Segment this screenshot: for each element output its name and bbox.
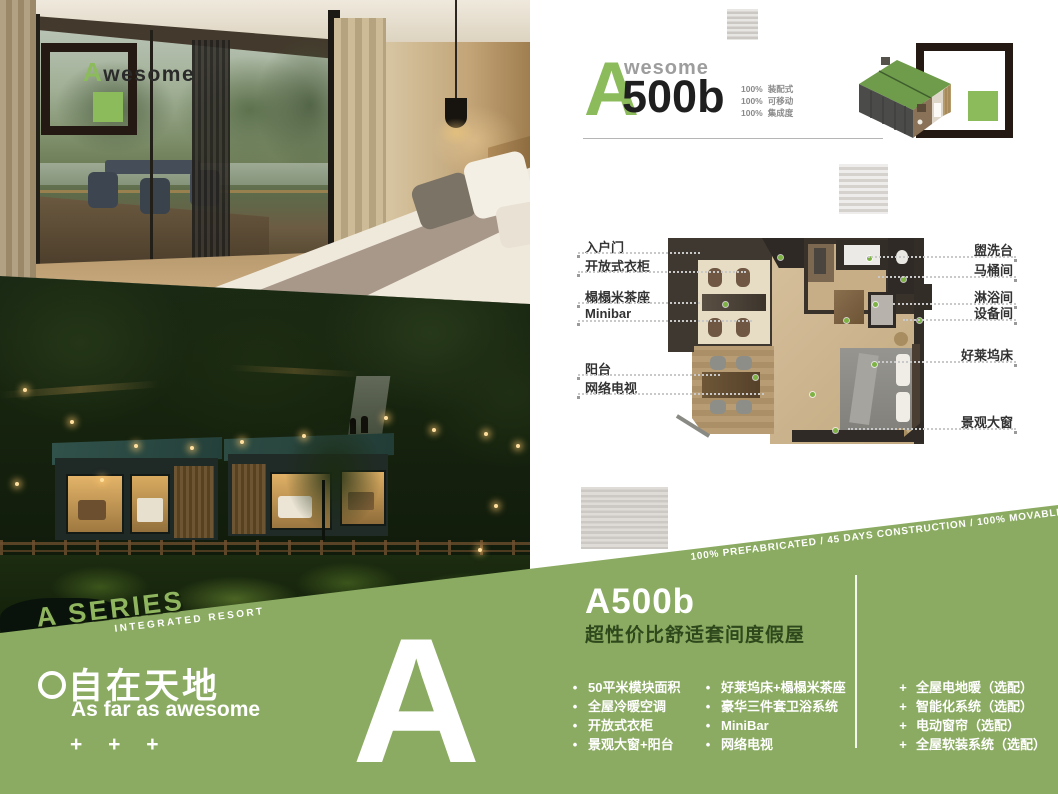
brand-logo-text: Awesome	[83, 57, 195, 88]
striped-block	[581, 487, 668, 549]
banner-model-title: A500b	[585, 582, 695, 622]
striped-block	[839, 164, 888, 214]
plan-headboard	[912, 344, 920, 436]
curtain	[0, 0, 36, 295]
leader-dot	[1014, 431, 1017, 434]
brand-rest: wesome	[103, 63, 195, 86]
photo-bedroom: Awesome	[0, 0, 530, 312]
header-specs: 100%装配式 100%可移动 100%集成度	[741, 84, 793, 119]
brochure-page: Awesome	[0, 0, 1058, 794]
leader-line	[903, 319, 1016, 321]
path-light	[15, 482, 19, 486]
floorplan	[658, 232, 932, 452]
path-light	[190, 446, 194, 450]
plan-equipment-unit	[814, 248, 826, 274]
logo-green-square-icon	[968, 91, 998, 121]
plan-balcony-chair	[736, 400, 752, 414]
lamp-glow	[438, 118, 474, 146]
leader-line	[878, 361, 1016, 363]
bullet-icon: •	[703, 738, 713, 751]
feature-item: •景观大窗+阳台	[570, 738, 680, 751]
bullet-icon: •	[703, 700, 713, 713]
leader-dot	[1014, 306, 1017, 309]
path-light	[478, 548, 482, 552]
plan-tea-table	[702, 294, 766, 311]
plus-icon: +	[898, 681, 908, 694]
leader-dot	[1014, 364, 1017, 367]
brand-initial: A	[83, 57, 103, 87]
cabin-furniture	[78, 500, 106, 520]
feature-item: •开放式衣柜	[570, 719, 680, 732]
spec-row: 100%装配式	[741, 84, 793, 95]
plan-pillow	[896, 354, 910, 386]
leader-dot	[577, 305, 580, 308]
plan-balcony-chair	[710, 356, 726, 370]
feature-item: •好莱坞床+榻榻米茶座	[703, 681, 846, 694]
leader-line	[578, 271, 746, 273]
leader-dot	[1014, 279, 1017, 282]
path-light	[516, 444, 520, 448]
plan-marker	[810, 392, 815, 397]
slogan-english: As far as awesome	[71, 698, 260, 722]
leader-line	[848, 428, 1016, 430]
logo-green-square-icon	[93, 92, 123, 122]
plan-bottom-wall	[792, 430, 904, 442]
plan-marker	[844, 318, 849, 323]
floorplan-label: Minibar	[585, 306, 631, 321]
spec-row: 100%集成度	[741, 108, 793, 119]
feature-item: •网络电视	[703, 738, 846, 751]
path-light	[240, 440, 244, 444]
banner-diagonal-text: 100% PREFABRICATED / 45 DAYS CONSTRUCTIO…	[690, 507, 1058, 563]
feature-item: •MiniBar	[703, 719, 846, 732]
path-light	[432, 428, 436, 432]
deck-railing	[34, 190, 334, 193]
plus-marks: + + +	[70, 733, 168, 757]
header-model: 500b	[622, 74, 725, 119]
plan-wall	[668, 344, 694, 352]
plan-marker	[753, 375, 758, 380]
cabin-wood-panel	[232, 464, 266, 534]
feature-column-2: •好莱坞床+榻榻米茶座 •豪华三件套卫浴系统 •MiniBar •网络电视	[703, 681, 846, 751]
cabin-wood-panel	[174, 466, 214, 538]
leader-dot	[577, 274, 580, 277]
bullet-icon: •	[570, 738, 580, 751]
feature-item: +全屋电地暖（选配）	[898, 681, 1046, 694]
feature-item: •50平米模块面积	[570, 681, 680, 694]
bullet-icon: •	[703, 719, 713, 732]
feature-item: +电动窗帘（选配）	[898, 719, 1046, 732]
plan-balcony-chair	[710, 400, 726, 414]
leader-dot	[1014, 259, 1017, 262]
path-light	[302, 434, 306, 438]
feature-column-1: •50平米模块面积 •全屋冷暖空调 •开放式衣柜 •景观大窗+阳台	[570, 681, 680, 751]
deck-chair	[140, 178, 170, 214]
path-light	[484, 432, 488, 436]
deck-chair	[88, 172, 118, 208]
bullet-icon: •	[703, 681, 713, 694]
leader-dot	[577, 377, 580, 380]
leader-line	[578, 302, 700, 304]
plus-icon: +	[898, 719, 908, 732]
leader-line	[578, 252, 700, 254]
fence-rail	[0, 550, 530, 552]
leader-dot	[577, 323, 580, 326]
plan-stool	[894, 332, 908, 346]
banner-model-subtitle: 超性价比舒适套间度假屋	[585, 620, 805, 647]
plus-icon: +	[898, 738, 908, 751]
pillow-white	[495, 201, 530, 250]
louver-screen	[192, 40, 230, 278]
plan-marker	[872, 362, 877, 367]
path-light	[70, 420, 74, 424]
path-light	[134, 444, 138, 448]
pendant-cord	[455, 0, 457, 100]
fence-rail	[0, 542, 530, 545]
plan-basin	[844, 245, 880, 265]
spec-row: 100%可移动	[741, 96, 793, 107]
path-light	[100, 478, 104, 482]
path-light	[23, 388, 27, 392]
plan-minibar	[834, 290, 864, 324]
cabin-bed	[137, 498, 163, 522]
banner-big-letter: A	[352, 612, 481, 790]
path-light	[384, 416, 388, 420]
bullet-icon: •	[570, 719, 580, 732]
plus-icon: +	[898, 700, 908, 713]
leader-line	[868, 256, 1016, 258]
leader-line	[578, 374, 720, 376]
header-underline	[583, 138, 883, 139]
feature-column-3: +全屋电地暖（选配） +智能化系统（选配） +电动窗帘（选配） +全屋软装系统（…	[898, 681, 1046, 751]
plan-wall-stub	[914, 284, 932, 310]
foreground-tree	[286, 416, 381, 531]
house-3d-render-icon	[845, 54, 963, 140]
plan-balcony-chair	[736, 356, 752, 370]
bullet-icon: •	[570, 700, 580, 713]
plan-marker	[778, 255, 783, 260]
leader-line	[578, 320, 752, 322]
feature-item: •豪华三件套卫浴系统	[703, 700, 846, 713]
feature-item: +全屋软装系统（选配）	[898, 738, 1046, 751]
leader-dot	[577, 396, 580, 399]
slogan-circle-icon	[38, 671, 66, 699]
striped-block	[727, 9, 758, 40]
leader-line	[578, 393, 764, 395]
plan-marker	[873, 302, 878, 307]
plan-marker	[833, 428, 838, 433]
feature-item: +智能化系统（选配）	[898, 700, 1046, 713]
leader-dot	[577, 255, 580, 258]
bullet-icon: •	[570, 681, 580, 694]
leader-dot	[1014, 322, 1017, 325]
tree-trunk	[322, 480, 325, 540]
path-light	[494, 504, 498, 508]
plan-pillow	[896, 392, 910, 422]
feature-divider	[855, 575, 857, 748]
feature-item: •全屋冷暖空调	[570, 700, 680, 713]
plan-marker	[723, 302, 728, 307]
plan-shower	[868, 292, 896, 328]
leader-line	[878, 276, 1016, 278]
